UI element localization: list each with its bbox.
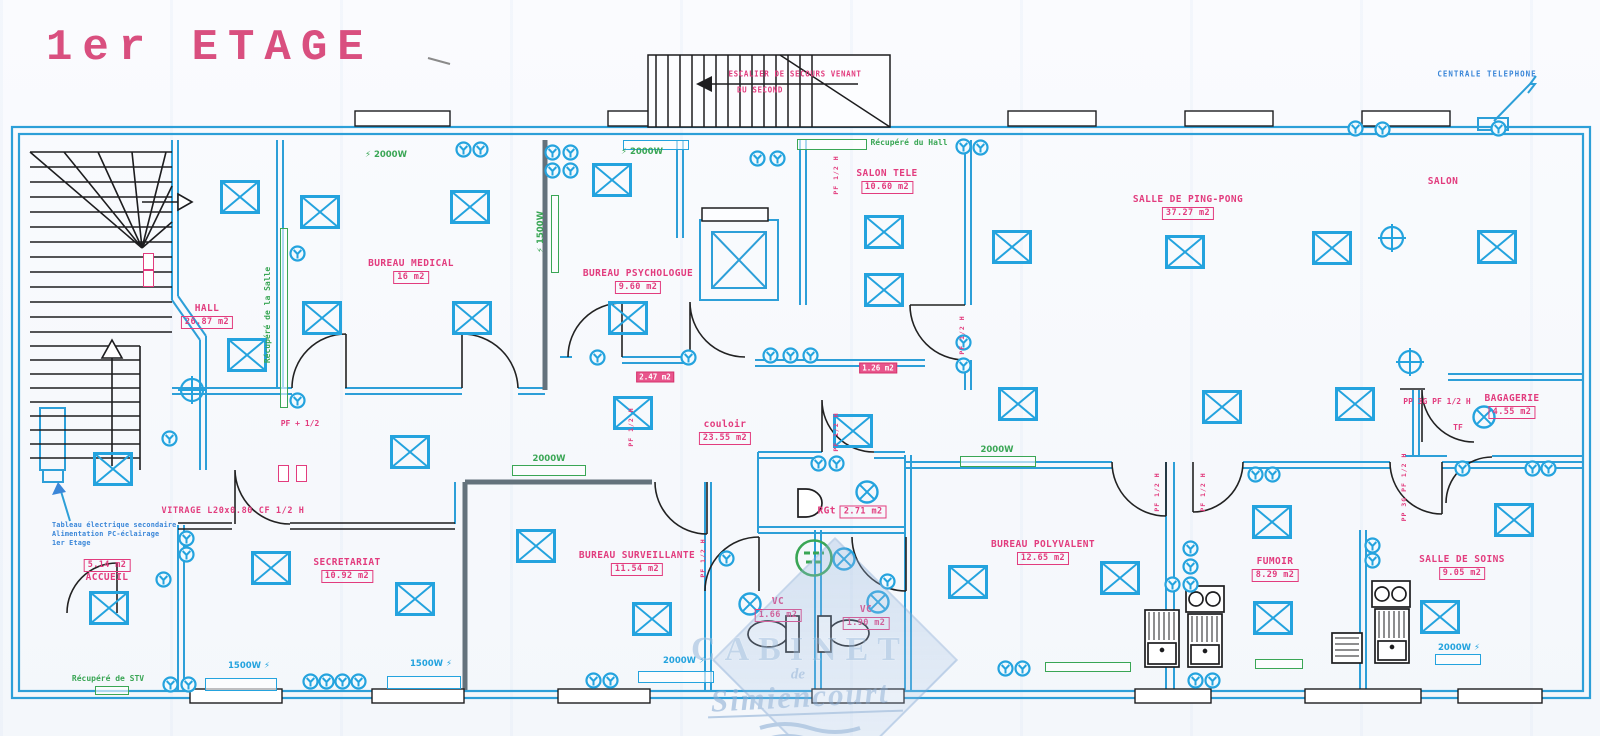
electric-heater [205,678,277,691]
ceiling-light-icon [948,565,988,599]
room-name: couloir [699,419,751,431]
junction-box-icon [1378,224,1406,252]
room-area: 10.60 m2 [861,181,913,194]
ceiling-light-icon [516,529,556,563]
extractor-fan-icon [794,538,834,578]
socket-icon [585,672,602,689]
radiator [960,456,1036,467]
ceiling-light-icon [998,387,1038,421]
room-area: 16 m2 [393,271,429,284]
switch-icon [296,465,307,482]
page-title: 1er ETAGE [46,26,374,70]
power-label: 2000W [532,454,565,464]
electric-heater [387,676,461,689]
socket-icon [810,455,827,472]
socket-icon [289,245,306,262]
green-note: Récupéré du Hall [870,138,947,148]
ceiling-light-icon [608,301,648,335]
socket-icon [997,660,1014,677]
radiator [551,195,559,273]
door-rating-tag: PF 1/2 H [1153,472,1161,511]
socket-icon [180,676,197,693]
socket-icon [161,430,178,447]
socket-icon [1490,120,1507,137]
room-label-bureau-polyvalent: BUREAU POLYVALENT12.65 m2 [991,539,1095,565]
escape-stair-note-line2: DU SECOND [737,86,783,95]
door-rating-tag: PF 1/2 H [699,538,707,577]
ceiling-light-icon [93,452,133,486]
socket-icon [769,150,786,167]
socket-icon [1364,552,1381,569]
door-rating-tag: PF 1/2 H [627,407,635,446]
power-label: 2000W [980,445,1013,455]
power-label: ⚡ 2000W [365,150,407,160]
ceiling-light-icon [227,338,267,372]
ceiling-light-icon [1312,231,1352,265]
ceiling-light-icon [452,301,492,335]
radiator [1045,662,1131,672]
room-label-vc: VC1.90 m2 [843,604,890,630]
power-label: ⚡ 2000W [621,147,663,157]
socket-icon [334,673,351,690]
power-label: ⚡ 1500W [536,211,546,253]
wall-light-icon [855,480,879,504]
switch-icon [143,253,154,270]
room-name: HALL [181,303,233,315]
door-rating-tag: PF 1/2 H [832,155,840,194]
tableau-line2: Alimentation PC-éclairage [52,530,176,539]
ceiling-light-icon [1100,561,1140,595]
ceiling-light-icon [1335,387,1375,421]
room-label-bureau-psychologue: BUREAU PSYCHOLOGUE9.60 m2 [583,268,693,294]
socket-icon [562,144,579,161]
room-area: 2.71 m2 [840,505,887,518]
room-area: 9.60 m2 [615,281,662,294]
ceiling-light-icon [1420,600,1460,634]
socket-icon [1347,120,1364,137]
floor-plan-page: HALL26.87 m2BUREAU MEDICAL16 m2BUREAU PS… [0,0,1600,736]
ceiling-light-icon [1202,390,1242,424]
room-label-salon: SALON [1428,176,1459,188]
tableau-line1: Tableau électrique secondaire [52,521,176,530]
ceiling-light-icon [992,230,1032,264]
socket-icon [782,347,799,364]
socket-icon [1264,466,1281,483]
socket-icon [155,571,172,588]
ceiling-light-icon [864,215,904,249]
radiator [280,228,288,408]
wall-light-icon [832,547,856,571]
radiator [797,139,867,150]
socket-icon [972,139,989,156]
door-rating-tag: PF 1/2 H [1199,472,1207,511]
room-name: SALON [1428,176,1459,188]
room-name: SALON TELE [856,168,917,180]
room-label-secretariat: SECRETARIAT10.92 m2 [313,557,380,583]
room-area: 37.27 m2 [1162,207,1214,220]
room-area: 5.14 m2 [84,559,131,572]
room-name: FUMOIR [1252,556,1299,568]
tableau-electrique-note: Tableau électrique secondaire Alimentati… [52,521,176,549]
room-area: 4.55 m2 [1489,406,1536,419]
room-name: VC [843,604,890,616]
socket-icon [749,150,766,167]
socket-icon [544,162,561,179]
socket-icon [178,546,195,563]
room-name: BUREAU MEDICAL [368,258,454,270]
room-name: RGt [818,506,836,518]
ceiling-light-icon [592,163,632,197]
room-name: BUREAU PSYCHOLOGUE [583,268,693,280]
socket-icon [955,138,972,155]
socket-icon [472,141,489,158]
ceiling-light-icon [395,582,435,616]
room-area: 23.55 m2 [699,432,751,445]
socket-icon [589,349,606,366]
small-label: TF [1453,423,1463,433]
room-name: BAGAGERIE [1484,393,1539,405]
junction-box-icon [1396,348,1424,376]
ceiling-light-icon [1477,230,1517,264]
room-name: BUREAU SURVEILLANTE [579,550,695,562]
socket-icon [1524,460,1541,477]
socket-icon [1374,121,1391,138]
green-note: Récupéré de la Salle [263,267,273,363]
socket-icon [455,141,472,158]
small-label: 2.47 m2 [636,372,674,383]
power-label: 2000W ⚡ [1438,643,1480,653]
escape-stair-note-line1: ESCALIER DE SECOURS VENANT [729,70,862,79]
socket-icon [178,530,195,547]
room-area: 26.87 m2 [181,316,233,329]
green-note: Récupéré de STV [72,674,144,684]
socket-icon [1454,460,1471,477]
room-name: VC [755,596,802,608]
switch-icon [278,465,289,482]
small-label: PF + 1/2 [281,419,320,429]
power-label: 1500W ⚡ [228,661,270,671]
socket-icon [1187,672,1204,689]
room-area: 8.29 m2 [1252,569,1299,582]
room-label-couloir: couloir23.55 m2 [699,419,751,445]
ceiling-light-icon [390,435,430,469]
socket-icon [1014,660,1031,677]
ceiling-light-icon [864,273,904,307]
socket-icon [718,550,735,567]
socket-icon [1540,460,1557,477]
room-label-rgt: RGt2.71 m2 [818,505,887,518]
room-area: 1.90 m2 [843,617,890,630]
room-area: 10.92 m2 [321,570,373,583]
ceiling-light-icon [632,602,672,636]
room-area: 12.65 m2 [1017,552,1069,565]
socket-icon [1204,672,1221,689]
socket-icon [802,347,819,364]
tableau-line3: 1er Etage [52,539,176,548]
room-label-salon-tele: SALON TELE10.60 m2 [856,168,917,194]
room-label-salle-de-ping-pong: SALLE DE PING-PONG37.27 m2 [1133,194,1243,220]
ceiling-light-icon [1165,235,1205,269]
room-area: 9.05 m2 [1439,567,1486,580]
ceiling-light-icon [302,301,342,335]
room-label-vc: VC1.66 m2 [755,596,802,622]
socket-icon [1182,558,1199,575]
socket-icon [162,676,179,693]
radiator [1255,659,1303,669]
room-name: SALLE DE SOINS [1419,554,1505,566]
room-label-accueil: 5.14 m2ACCUEIL [84,558,131,584]
small-label: 1.26 m2 [859,363,897,374]
ceiling-light-icon [1494,503,1534,537]
switch-icon [143,270,154,287]
socket-icon [680,349,697,366]
radiator [512,465,586,476]
door-rating-tag: PP 3G PF 1/2 H [1400,453,1408,522]
room-name: SALLE DE PING-PONG [1133,194,1243,206]
centrale-telephone-note: CENTRALE TELEPHONE [1437,70,1536,79]
socket-icon [1182,576,1199,593]
socket-icon [828,455,845,472]
electric-heater [1435,654,1481,665]
socket-icon [302,673,319,690]
socket-icon [350,673,367,690]
room-label-bureau-surveillante: BUREAU SURVEILLANTE11.54 m2 [579,550,695,576]
socket-icon [602,672,619,689]
ceiling-light-icon [220,180,260,214]
room-label-hall: HALL26.87 m2 [181,303,233,329]
socket-icon [318,673,335,690]
room-label-salle-de-soins: SALLE DE SOINS9.05 m2 [1419,554,1505,580]
door-rating-tag: PF 1/2 H [958,315,966,354]
room-label-bagagerie: BAGAGERIE4.55 m2 [1484,393,1539,419]
socket-icon [762,347,779,364]
vitrage-note: VITRAGE L20x0.80 CF 1/2 H [162,506,305,516]
small-label: PP 3G PF 1/2 H [1403,397,1470,407]
socket-icon [1164,576,1181,593]
socket-icon [544,144,561,161]
socket-icon [289,392,306,409]
power-label: 2000W ⚡ [663,656,705,666]
socket-icon [879,573,896,590]
radiator [95,686,129,695]
room-label-bureau-medical: BUREAU MEDICAL16 m2 [368,258,454,284]
junction-box-icon [178,376,206,404]
room-name: BUREAU POLYVALENT [991,539,1095,551]
ceiling-light-icon [1252,505,1292,539]
room-area: 1.66 m2 [755,609,802,622]
electric-heater [638,671,714,683]
room-area: 11.54 m2 [611,563,663,576]
door-rating-tag: PF 1/2 H [832,412,840,451]
room-name: ACCUEIL [84,572,131,584]
room-label-fumoir: FUMOIR8.29 m2 [1252,556,1299,582]
socket-icon [1182,540,1199,557]
ceiling-light-icon [1253,601,1293,635]
socket-icon [562,162,579,179]
ceiling-light-icon [450,190,490,224]
ceiling-light-icon [251,551,291,585]
room-name: SECRETARIAT [313,557,380,569]
socket-icon [955,357,972,374]
power-label: 1500W ⚡ [410,659,452,669]
ceiling-light-icon [89,591,129,625]
socket-icon [1247,466,1264,483]
ceiling-light-icon [300,195,340,229]
